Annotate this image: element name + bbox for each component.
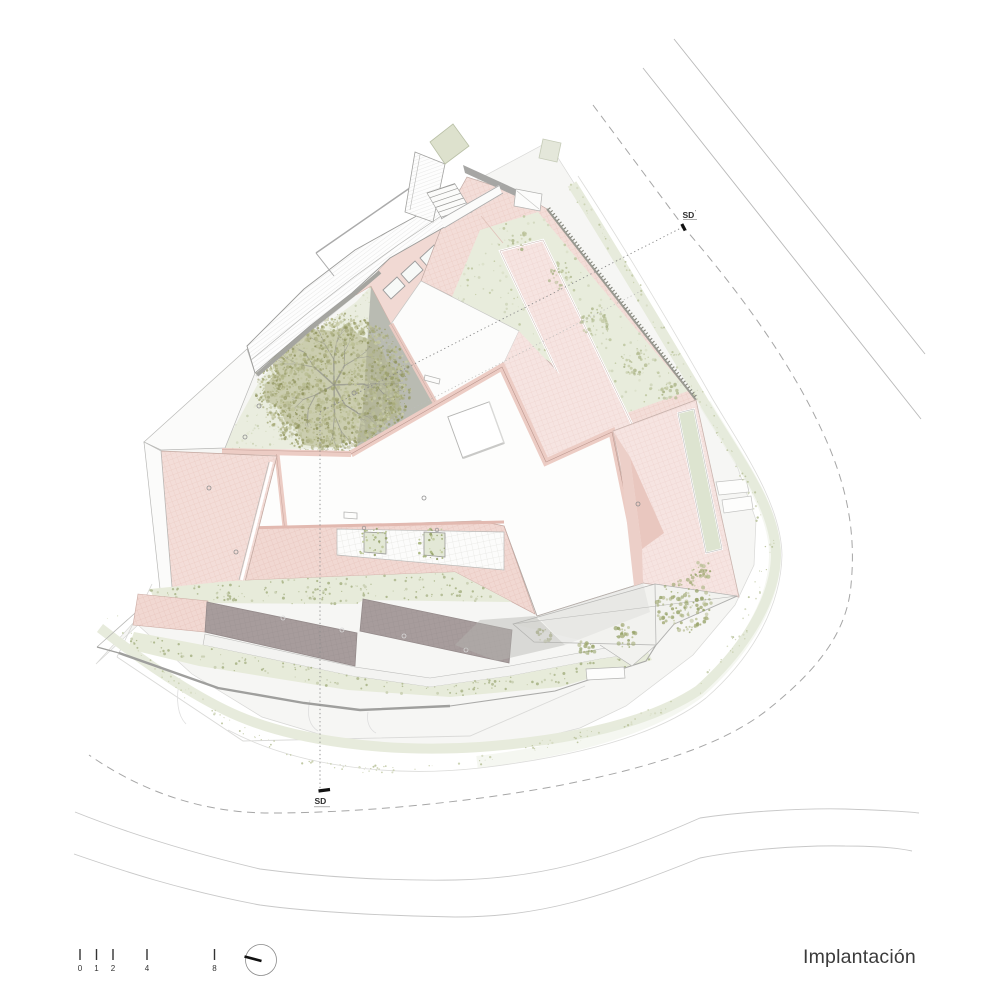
svg-text:2: 2 [111, 964, 116, 973]
svg-text:': ' [695, 210, 696, 216]
svg-text:1: 1 [94, 964, 99, 973]
svg-text:0: 0 [78, 964, 83, 973]
svg-text:8: 8 [212, 964, 217, 973]
svg-text:SD: SD [683, 210, 695, 220]
svg-text:4: 4 [145, 964, 150, 973]
svg-text:Implantación: Implantación [803, 946, 916, 968]
svg-text:SD: SD [315, 796, 327, 806]
